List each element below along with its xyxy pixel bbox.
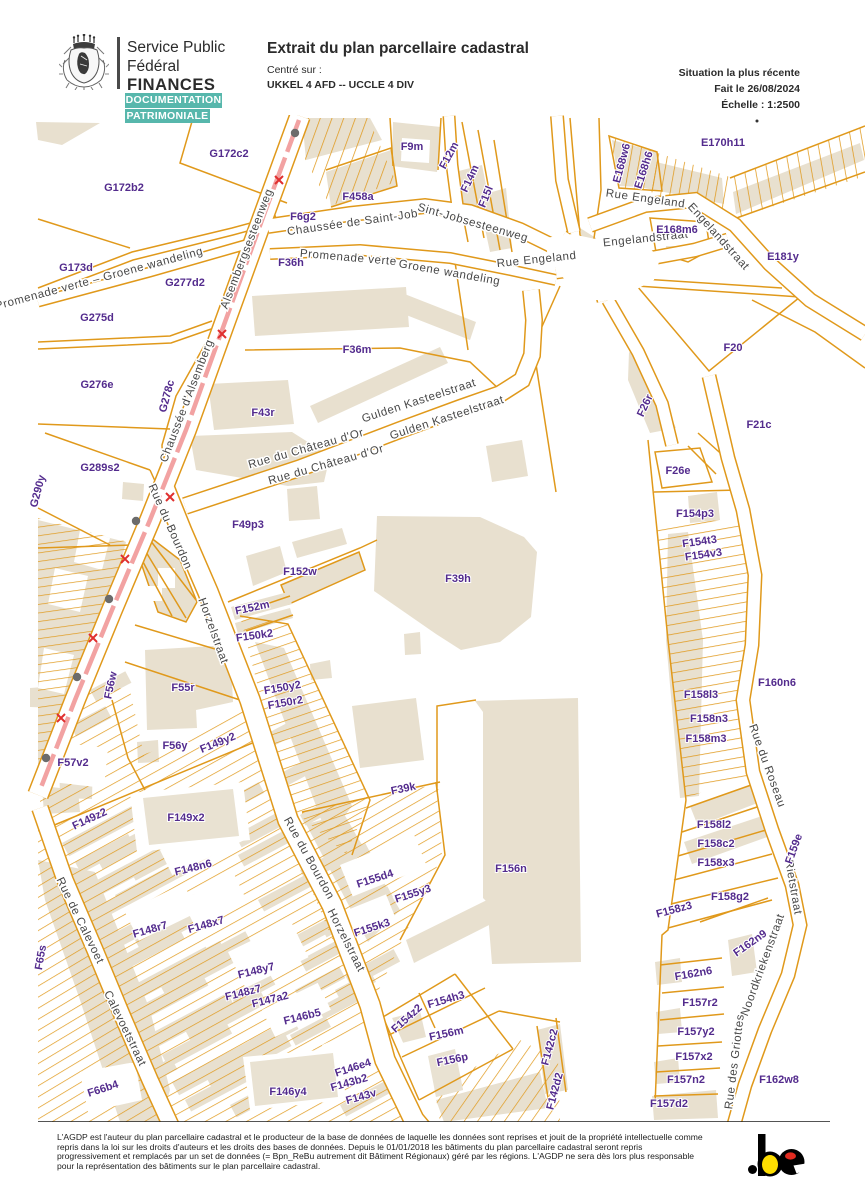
svg-text:G276e: G276e [80, 379, 113, 391]
svg-text:F157r2: F157r2 [682, 997, 717, 1009]
svg-text:F56y: F56y [162, 740, 188, 752]
svg-text:F39h: F39h [445, 573, 471, 585]
svg-text:F43r: F43r [251, 407, 275, 419]
svg-text:G172c2: G172c2 [209, 148, 248, 160]
svg-text:F49p3: F49p3 [232, 519, 264, 531]
svg-text:E181y: E181y [767, 251, 800, 263]
svg-text:F157d2: F157d2 [650, 1098, 688, 1110]
svg-text:F149x2: F149x2 [167, 812, 204, 824]
svg-text:G172b2: G172b2 [104, 182, 144, 194]
svg-text:F55r: F55r [171, 682, 195, 694]
svg-text:F146y4: F146y4 [269, 1086, 307, 1098]
svg-text:G277d2: G277d2 [165, 277, 205, 289]
svg-text:G275d: G275d [80, 312, 114, 324]
svg-text:F21c: F21c [746, 419, 771, 431]
svg-text:E168m6: E168m6 [656, 224, 698, 236]
svg-text:F57v2: F57v2 [57, 757, 88, 769]
svg-text:F160n6: F160n6 [758, 677, 796, 689]
svg-text:F36m: F36m [343, 344, 372, 356]
svg-text:F157y2: F157y2 [677, 1026, 714, 1038]
svg-text:F158l3: F158l3 [684, 689, 718, 701]
svg-text:F158c2: F158c2 [697, 838, 734, 850]
svg-text:F158g2: F158g2 [711, 891, 749, 903]
svg-text:E170h11: E170h11 [701, 137, 745, 149]
svg-text:G173d: G173d [59, 262, 93, 274]
svg-text:F162w8: F162w8 [759, 1074, 799, 1086]
svg-text:F156n: F156n [495, 863, 527, 875]
svg-text:F157x2: F157x2 [675, 1051, 712, 1063]
svg-text:F158x3: F158x3 [697, 857, 734, 869]
svg-text:F158l2: F158l2 [697, 819, 731, 831]
svg-text:F6g2: F6g2 [290, 211, 316, 223]
svg-text:F36h: F36h [278, 257, 304, 269]
svg-text:F9m: F9m [401, 141, 424, 153]
svg-text:F158m3: F158m3 [686, 733, 727, 745]
svg-text:F26e: F26e [665, 465, 690, 477]
svg-text:F152w: F152w [283, 566, 317, 578]
svg-text:F20: F20 [724, 342, 743, 354]
svg-text:F458a: F458a [342, 191, 374, 203]
svg-text:F154p3: F154p3 [676, 508, 714, 520]
svg-text:F157n2: F157n2 [667, 1074, 705, 1086]
svg-text:G289s2: G289s2 [80, 462, 119, 474]
svg-text:F158n3: F158n3 [690, 713, 728, 725]
